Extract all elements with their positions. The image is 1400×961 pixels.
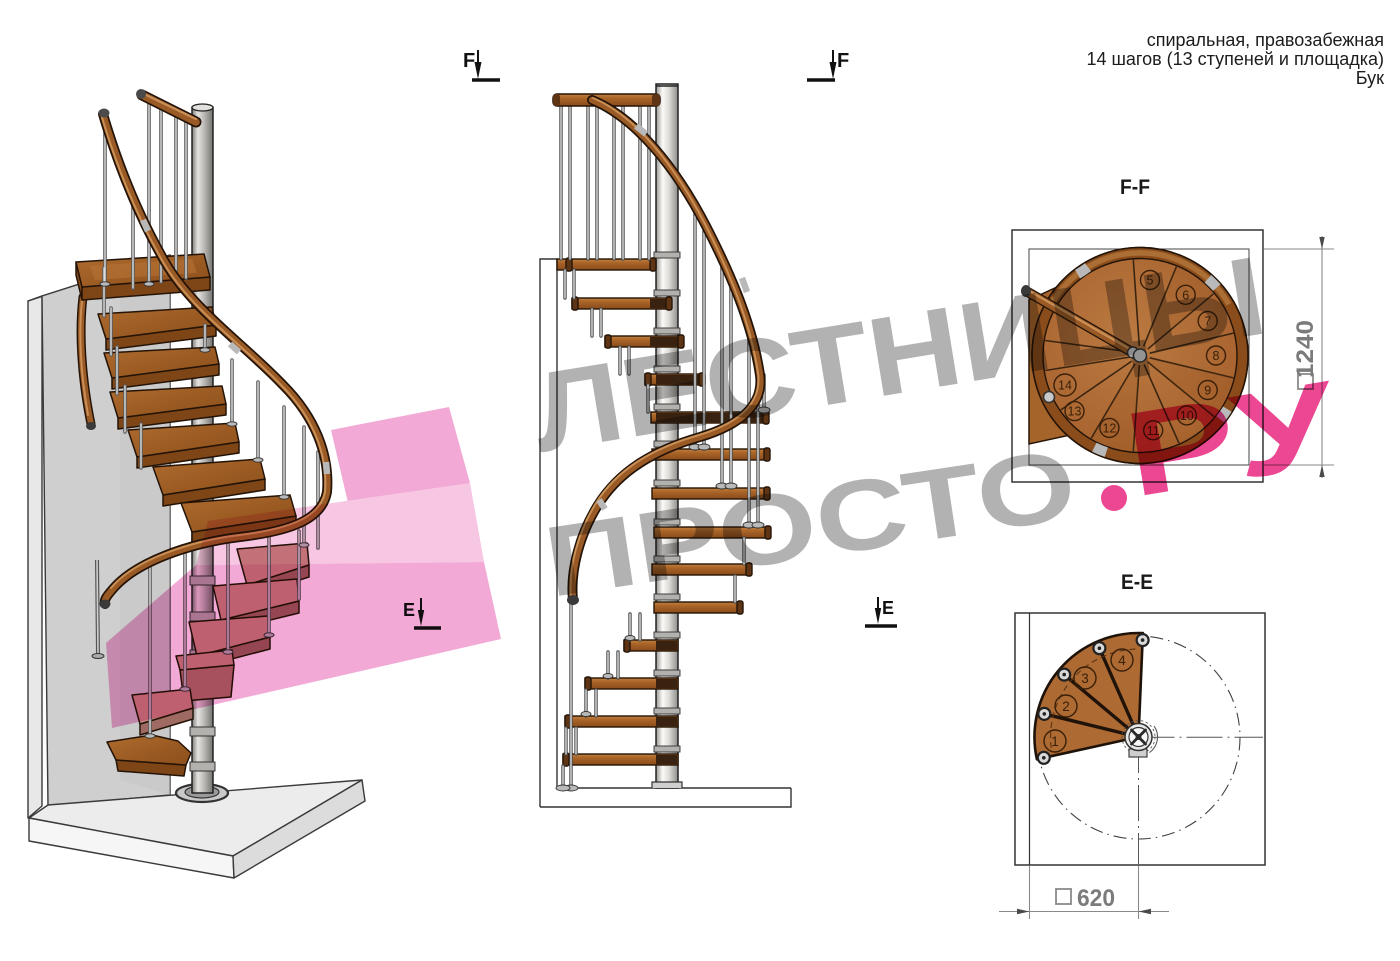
svg-text:4: 4 — [1118, 653, 1126, 668]
svg-text:12: 12 — [1102, 421, 1116, 435]
svg-text:F-F: F-F — [1120, 176, 1150, 199]
svg-text:1: 1 — [1051, 734, 1059, 749]
svg-text:E-E: E-E — [1121, 571, 1153, 594]
svg-text:спиральная, правозабежная: спиральная, правозабежная — [1147, 30, 1384, 50]
svg-text:Бук: Бук — [1356, 68, 1384, 88]
svg-text:14 шагов (13 ступеней и площад: 14 шагов (13 ступеней и площадка) — [1086, 49, 1384, 69]
svg-text:E: E — [882, 598, 894, 618]
svg-text:13: 13 — [1068, 405, 1082, 419]
svg-text:F: F — [837, 50, 849, 72]
svg-text:2: 2 — [1062, 699, 1070, 714]
svg-text:3: 3 — [1081, 671, 1089, 686]
svg-text:620: 620 — [1077, 885, 1115, 912]
svg-text:F: F — [463, 50, 475, 72]
